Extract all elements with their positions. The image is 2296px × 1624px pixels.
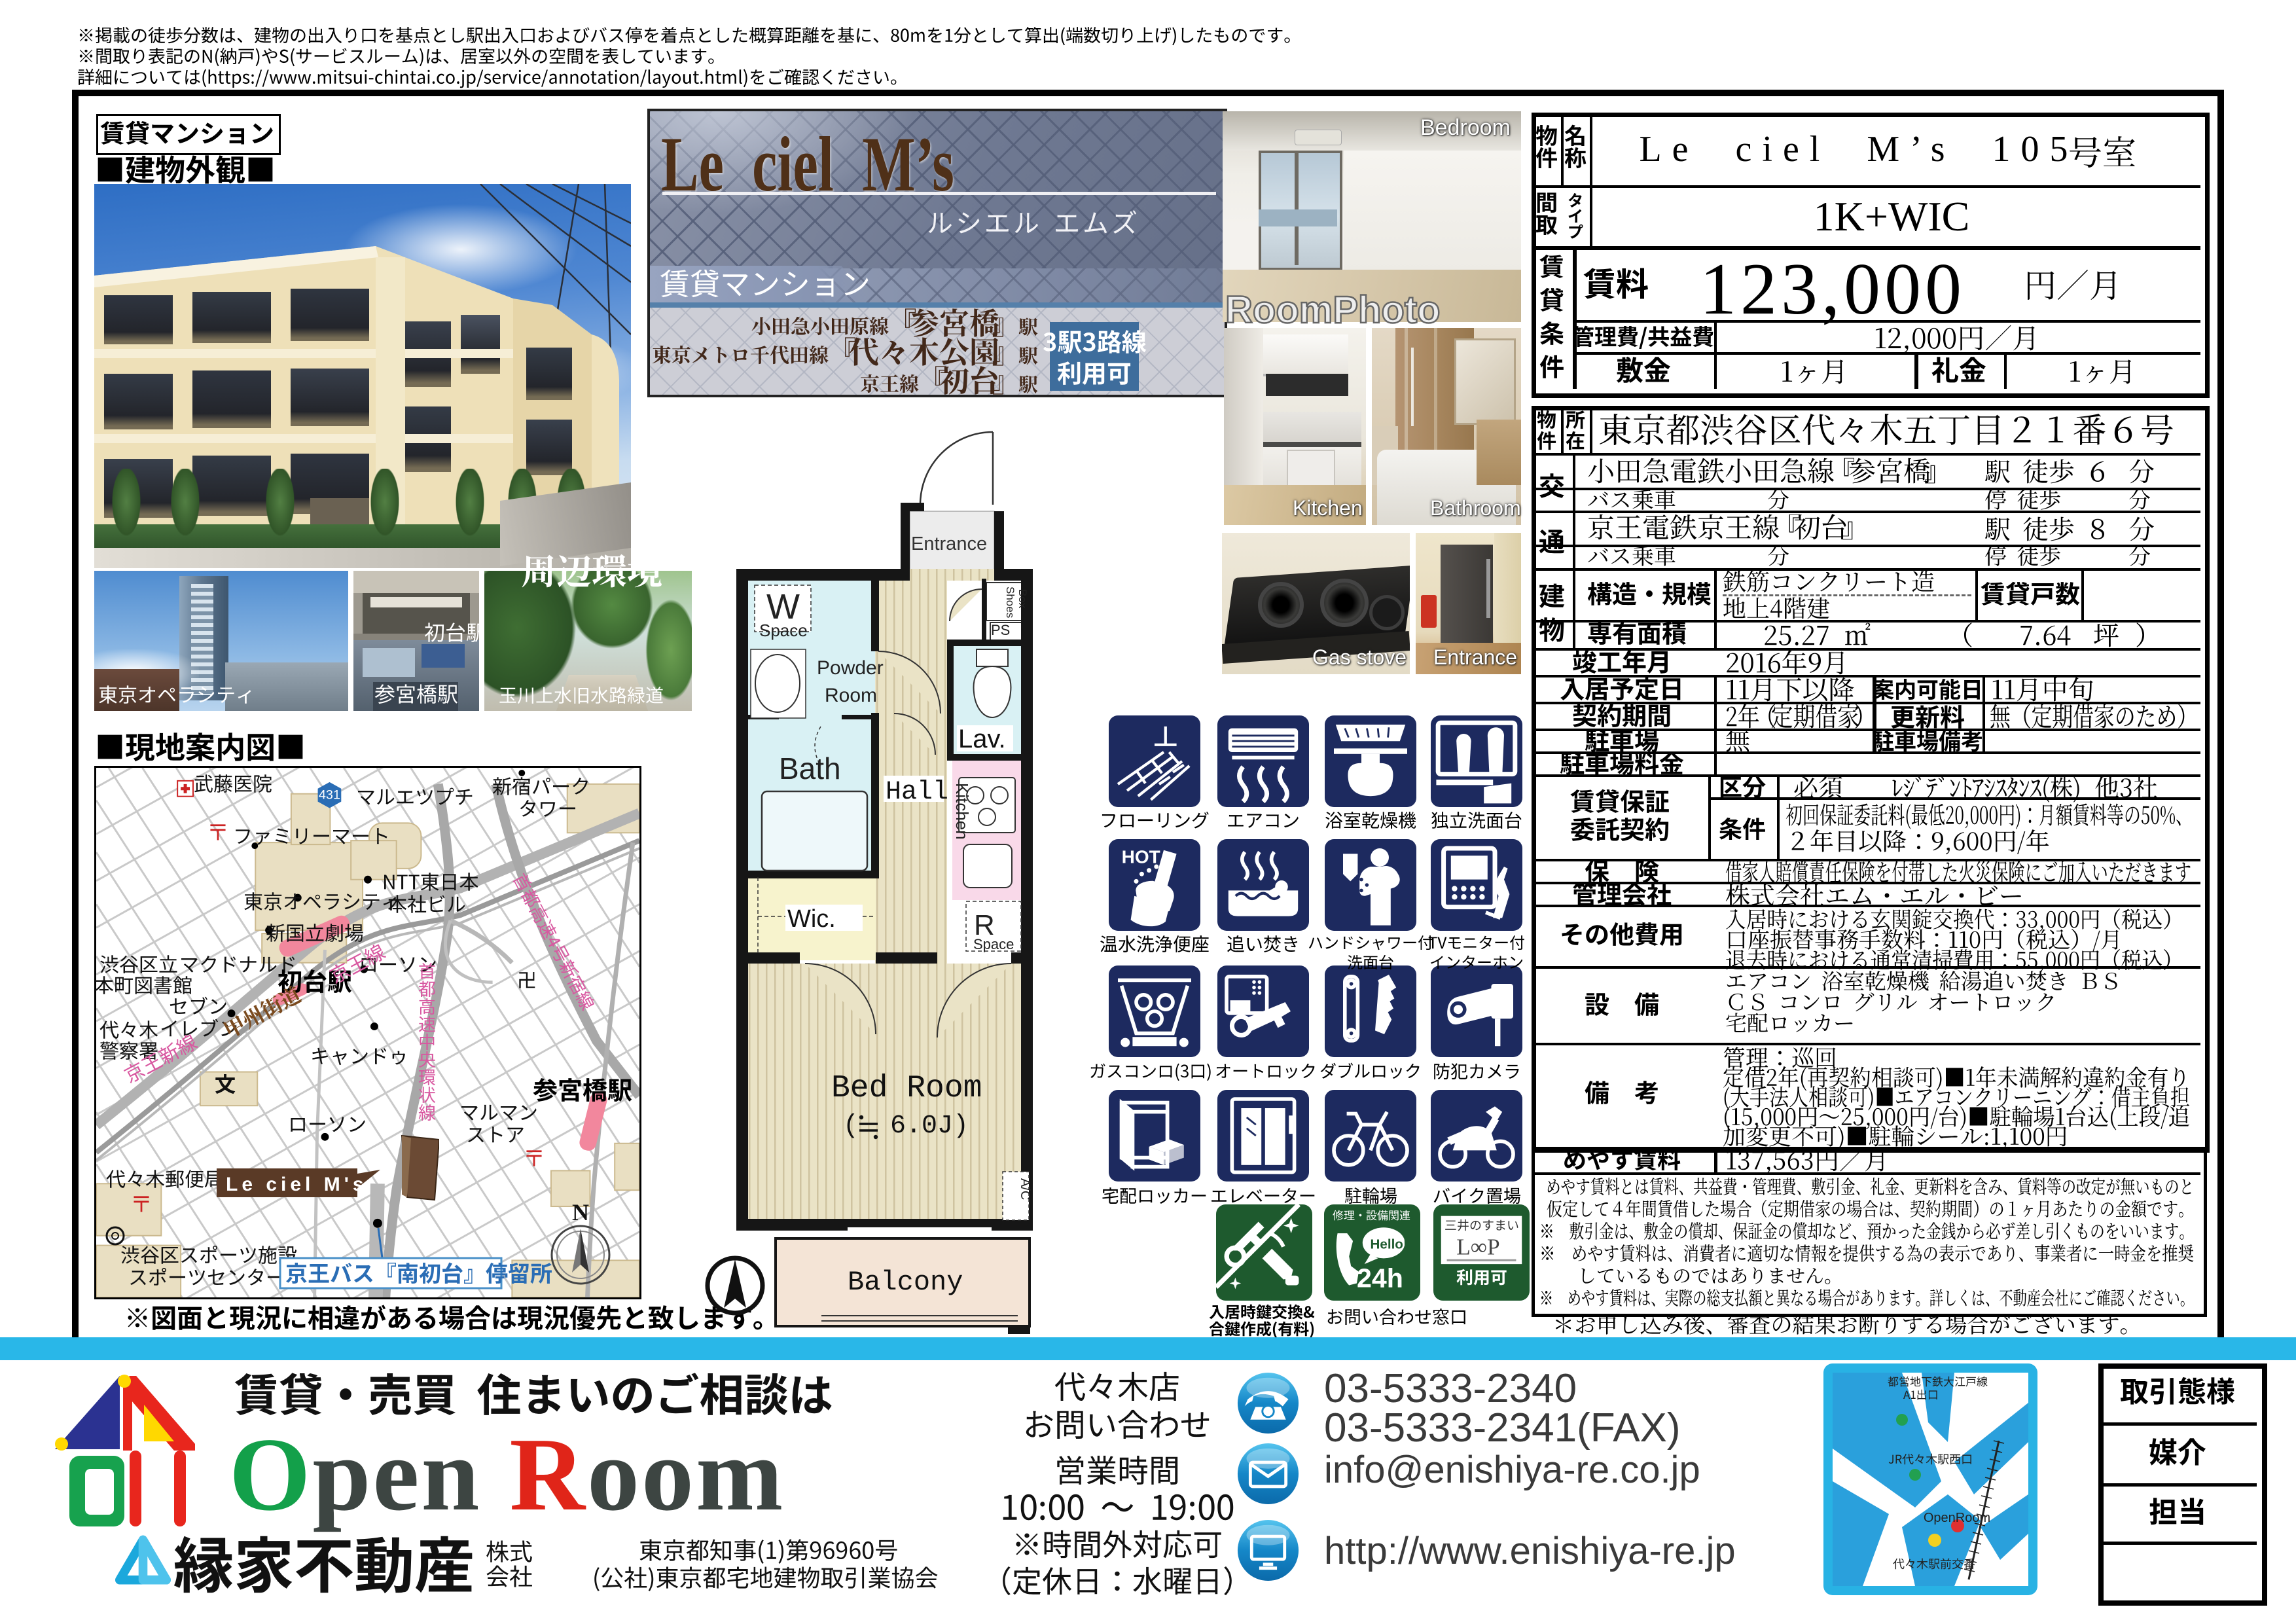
svg-text:PS: PS bbox=[991, 622, 1010, 638]
svg-text:Powder: Powder bbox=[817, 657, 884, 679]
svg-text:Balcony: Balcony bbox=[848, 1267, 963, 1298]
svg-text:N: N bbox=[572, 1199, 589, 1225]
svg-text:Lav.: Lav. bbox=[958, 725, 1006, 753]
svg-text:L∞P: L∞P bbox=[1456, 1234, 1499, 1259]
svg-text:Bath: Bath bbox=[779, 751, 841, 785]
svg-text:Box: Box bbox=[1016, 589, 1029, 609]
svg-text:Le ciel M's: Le ciel M's bbox=[226, 1174, 368, 1195]
svg-text:Room: Room bbox=[825, 685, 877, 706]
svg-text:HOT: HOT bbox=[1122, 846, 1160, 867]
svg-text:Wic.: Wic. bbox=[787, 905, 836, 933]
svg-text:Space: Space bbox=[973, 936, 1014, 952]
svg-text:Hello!!: Hello!! bbox=[1371, 1237, 1412, 1252]
svg-text:Entrance: Entrance bbox=[911, 533, 987, 554]
svg-text:Bed Room: Bed Room bbox=[831, 1071, 982, 1106]
svg-text:Space: Space bbox=[759, 621, 808, 640]
svg-text:A/C: A/C bbox=[1018, 1178, 1032, 1200]
svg-text:431: 431 bbox=[319, 788, 340, 803]
svg-text:24h: 24h bbox=[1357, 1263, 1403, 1293]
svg-text:Shoes: Shoes bbox=[1004, 586, 1016, 618]
svg-text:Hall: Hall bbox=[886, 778, 948, 807]
svg-text:Kitchen: Kitchen bbox=[952, 783, 972, 840]
